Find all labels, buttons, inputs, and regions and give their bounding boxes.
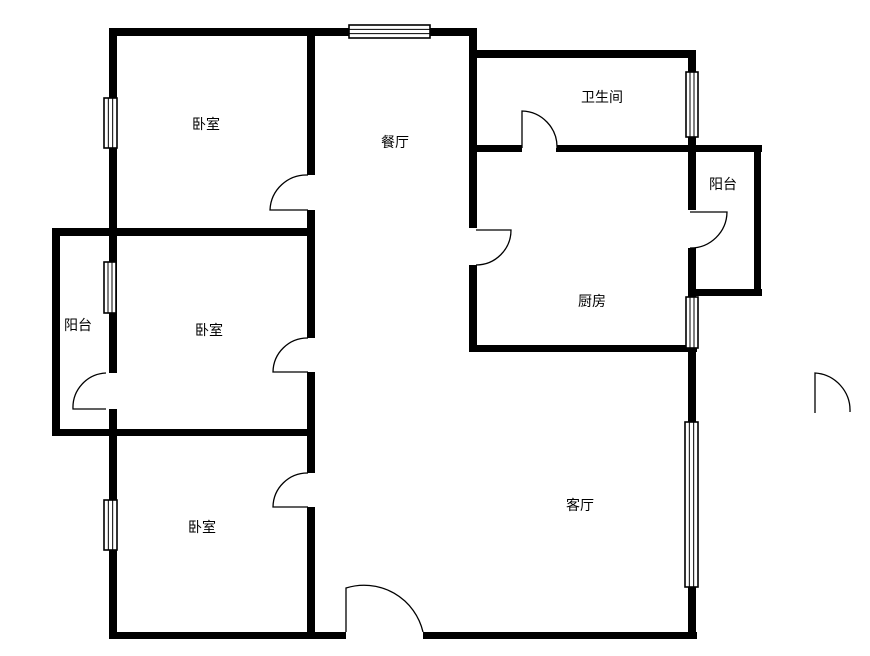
wall-bedroom1-bottom bbox=[52, 228, 315, 236]
wall-bathroom-top bbox=[469, 50, 696, 58]
wall-dining-kitchen-divider-upper bbox=[469, 28, 477, 228]
wall-right-outer-a bbox=[688, 50, 696, 72]
wall-bedroom2-bottom bbox=[52, 429, 313, 436]
window-dining-top bbox=[349, 25, 430, 38]
wall-right-outer-e bbox=[688, 587, 696, 639]
window-bedroom1-left bbox=[104, 98, 117, 148]
window-living-right bbox=[685, 422, 698, 587]
wall-center-vertical-c bbox=[307, 372, 315, 473]
wall-balcony-left-outer bbox=[52, 228, 60, 436]
wall-dining-kitchen-divider-lower bbox=[469, 265, 477, 352]
room-label-bedroom-middle: 卧室 bbox=[195, 320, 223, 340]
door-detached-right bbox=[815, 373, 850, 413]
wall-left-outer-upper bbox=[109, 28, 117, 373]
door-entry bbox=[346, 585, 423, 632]
wall-right-outer-d bbox=[688, 348, 696, 422]
wall-right-outer-c bbox=[688, 248, 696, 297]
wall-center-vertical-d bbox=[307, 507, 315, 639]
window-bedroom3-left bbox=[104, 500, 117, 550]
room-label-dining: 餐厅 bbox=[381, 132, 409, 152]
wall-balcony-right-outer bbox=[754, 145, 761, 296]
room-label-bedroom-bottom: 卧室 bbox=[188, 517, 216, 537]
door-bathroom bbox=[522, 111, 557, 148]
wall-center-vertical-a bbox=[307, 28, 315, 175]
room-label-balcony-left: 阳台 bbox=[64, 315, 92, 335]
wall-bathroom-bottom-right bbox=[556, 145, 762, 152]
door-balcony-right bbox=[690, 212, 727, 248]
room-label-bedroom-top: 卧室 bbox=[192, 114, 220, 134]
floorplan-drawing bbox=[0, 0, 870, 656]
door-bedroom-top bbox=[270, 175, 308, 210]
floorplan-canvas: 卧室 餐厅 卫生间 阳台 厨房 阳台 卧室 卧室 客厅 bbox=[0, 0, 870, 656]
window-kitchen-right bbox=[686, 297, 698, 348]
wall-kitchen-bottom bbox=[469, 345, 697, 352]
room-label-kitchen: 厨房 bbox=[578, 291, 606, 311]
wall-balcony-right-bottom bbox=[688, 289, 762, 296]
door-bedroom-middle bbox=[273, 338, 308, 372]
door-balcony-left bbox=[73, 373, 106, 409]
wall-right-outer-b bbox=[688, 137, 696, 210]
room-label-bathroom: 卫生间 bbox=[581, 87, 623, 107]
window-bedroom2-left bbox=[104, 262, 116, 313]
room-label-balcony-right: 阳台 bbox=[709, 174, 737, 194]
window-bathroom-right bbox=[686, 72, 698, 137]
door-kitchen bbox=[476, 230, 511, 265]
wall-bottom-outer-right bbox=[423, 632, 697, 639]
door-bedroom-bottom bbox=[273, 473, 308, 507]
wall-center-vertical-b bbox=[307, 210, 315, 338]
room-label-living: 客厅 bbox=[566, 495, 594, 515]
